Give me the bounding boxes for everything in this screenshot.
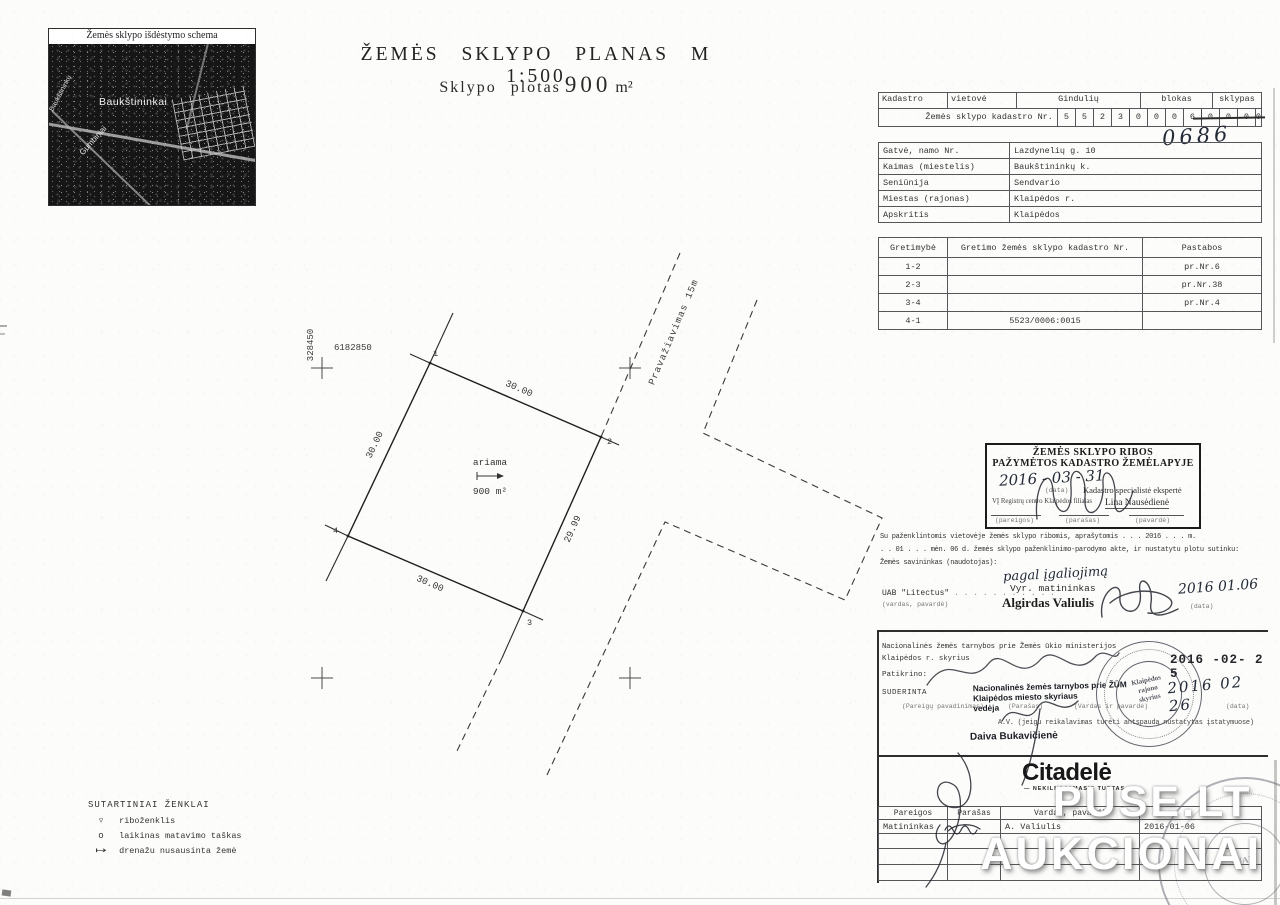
registry-stamp-box: ŽEMĖS SKLYPO RIBOS PAŽYMĖTOS KADASTRO ŽE… — [985, 443, 1201, 529]
coord-north-label: 328450 — [306, 329, 316, 361]
watermark-line1: PUSE.LT — [1053, 778, 1252, 827]
registry-signature — [1029, 457, 1149, 547]
drainage-symbol — [477, 472, 504, 480]
corner-number-1: 1 — [433, 349, 438, 359]
watermark-line2: AUKCIONAI — [980, 828, 1262, 880]
corner-number-4: 4 — [333, 526, 338, 536]
corner-number-2: 2 — [607, 437, 612, 447]
coord-east-label: 6182850 — [334, 343, 372, 353]
side-length-41: 30.00 — [364, 429, 386, 460]
land-use-label: ariama — [473, 457, 508, 468]
corner-number-3: 3 — [527, 618, 532, 628]
parcel-area-label: 900 m² — [473, 486, 507, 497]
scanned-land-plan-document: Žemės sklypo išdėstymo schema Baukštinin… — [0, 0, 1280, 905]
grid-crosses — [311, 357, 641, 689]
road-name-label: Pravažiavimas 15m — [646, 277, 701, 386]
